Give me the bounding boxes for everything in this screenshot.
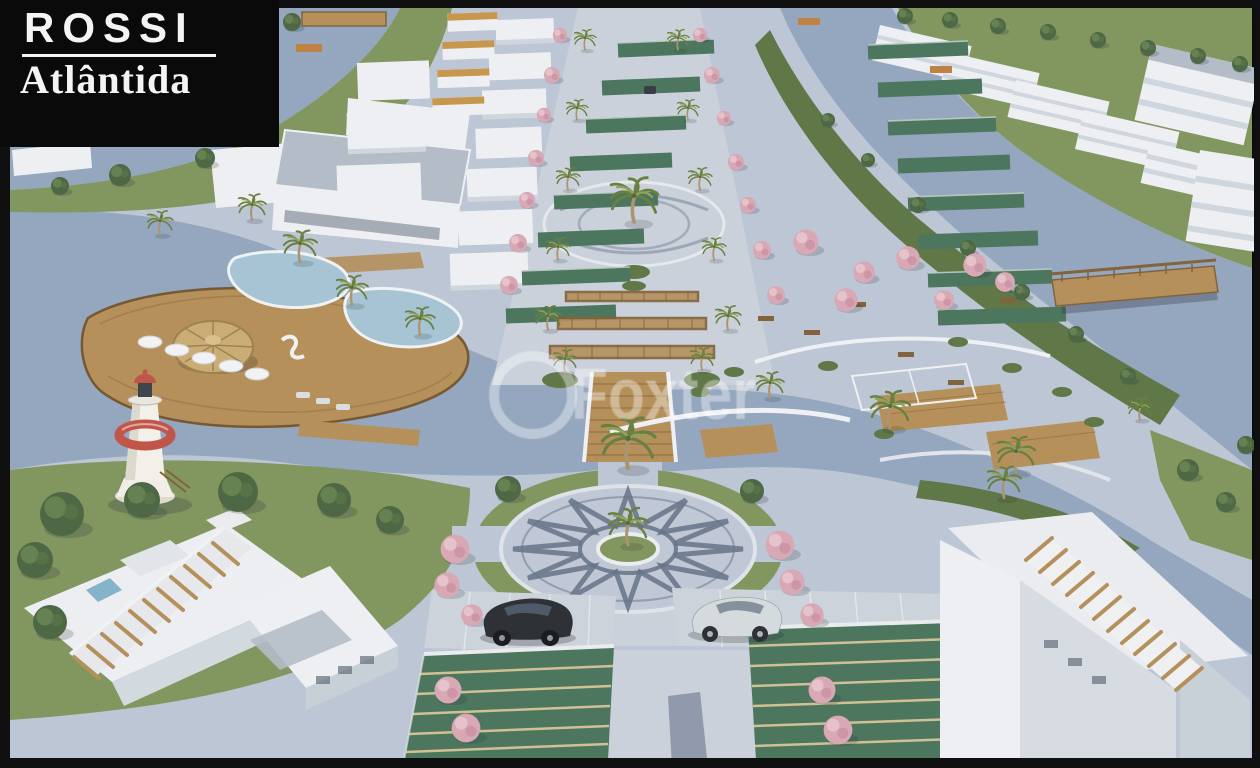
rendering-photo: ROSSI Atlântida Foxter	[0, 0, 1260, 768]
project-name: Atlântida	[20, 56, 191, 103]
brand-name: ROSSI	[24, 4, 195, 52]
brand-logo-plate: ROSSI Atlântida	[0, 0, 279, 147]
